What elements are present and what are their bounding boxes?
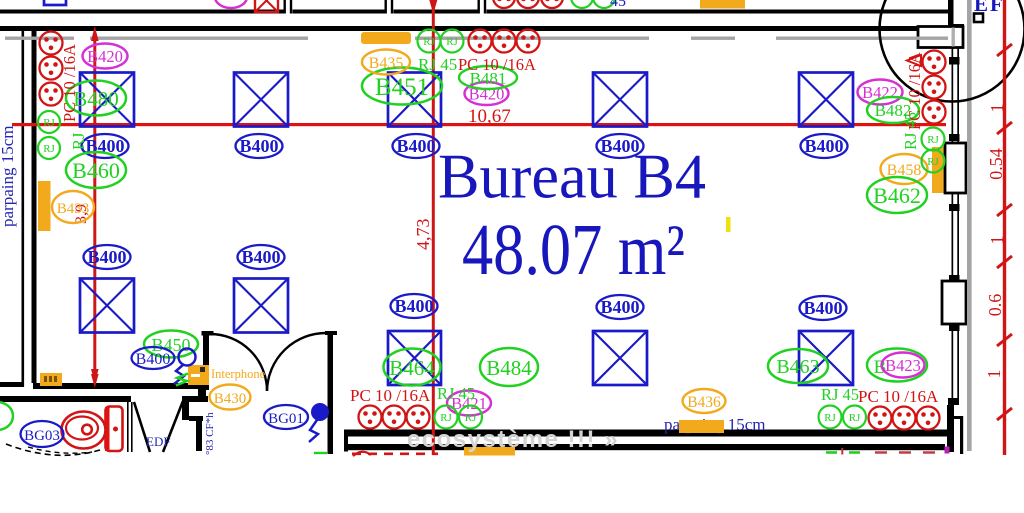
svg-text:B436: B436 — [687, 394, 721, 411]
svg-text:48.07 m²: 48.07 m² — [462, 209, 685, 290]
svg-text:RJ: RJ — [43, 143, 55, 155]
svg-text:4,73: 4,73 — [413, 219, 433, 251]
svg-text:B464: B464 — [389, 356, 435, 380]
svg-text:RJ: RJ — [43, 117, 55, 129]
svg-text:Bureau B4: Bureau B4 — [438, 141, 706, 212]
svg-text:B400: B400 — [396, 136, 435, 156]
svg-text:B433: B433 — [57, 201, 90, 217]
svg-text:B451: B451 — [375, 74, 429, 101]
svg-text:BG01: BG01 — [268, 411, 304, 427]
svg-text:B460: B460 — [72, 158, 120, 183]
svg-text:B484: B484 — [486, 356, 532, 380]
svg-text:RJ: RJ — [446, 36, 458, 48]
svg-text:45: 45 — [610, 0, 626, 10]
svg-text:RJ: RJ — [927, 156, 939, 168]
svg-text:1: 1 — [984, 370, 1004, 379]
svg-text:B400: B400 — [239, 136, 278, 156]
svg-text:BG03: BG03 — [24, 428, 60, 444]
svg-text:PC 10 /16A: PC 10 /16A — [458, 55, 536, 74]
svg-text:B423: B423 — [885, 356, 921, 375]
svg-text:B480: B480 — [73, 87, 119, 111]
svg-text:RJ 45: RJ 45 — [901, 112, 920, 150]
svg-text:0.6: 0.6 — [985, 294, 1005, 317]
svg-text:EDF: EDF — [146, 434, 171, 449]
svg-text:B400: B400 — [136, 351, 171, 368]
svg-text:°83 CF*h: °83 CF*h — [204, 412, 216, 455]
svg-text:RJ: RJ — [423, 36, 435, 48]
svg-text:B400: B400 — [241, 247, 280, 267]
svg-text:10,67: 10,67 — [468, 106, 511, 127]
svg-text:B462: B462 — [873, 183, 921, 208]
svg-text:PC 10 /16A: PC 10 /16A — [60, 44, 79, 122]
svg-text:parpaing 15cm: parpaing 15cm — [0, 126, 17, 228]
svg-text:1: 1 — [987, 236, 1007, 245]
svg-text:Interphone: Interphone — [211, 367, 266, 381]
svg-text:1: 1 — [987, 104, 1007, 113]
svg-text:PC 10 /16A: PC 10 /16A — [350, 386, 431, 405]
svg-text:B400: B400 — [803, 298, 842, 318]
svg-text:B400: B400 — [600, 136, 639, 156]
svg-text:B400: B400 — [394, 296, 433, 316]
svg-text:RJ: RJ — [849, 412, 861, 424]
svg-text:RJ: RJ — [69, 132, 88, 150]
svg-text:B400: B400 — [87, 247, 126, 267]
svg-text:RJ 45: RJ 45 — [418, 55, 457, 74]
svg-text:PC 10 /16A: PC 10 /16A — [858, 387, 939, 406]
svg-text:B400: B400 — [600, 297, 639, 317]
svg-text:RJ: RJ — [927, 134, 939, 146]
svg-text:ecosystème !!! »: ecosystème !!! » — [407, 426, 619, 453]
svg-text:RJ 45: RJ 45 — [821, 385, 859, 404]
svg-text:B435: B435 — [369, 55, 404, 72]
svg-text:RJ 45: RJ 45 — [437, 384, 475, 403]
svg-text:B420: B420 — [87, 47, 123, 66]
svg-text:B463: B463 — [776, 356, 819, 378]
svg-text:B430: B430 — [214, 391, 247, 407]
svg-text:RJ: RJ — [824, 412, 836, 424]
svg-text:0.54: 0.54 — [986, 148, 1006, 180]
svg-text:B400: B400 — [804, 136, 843, 156]
svg-text:RJ: RJ — [465, 412, 477, 424]
svg-text:RJ: RJ — [440, 412, 452, 424]
